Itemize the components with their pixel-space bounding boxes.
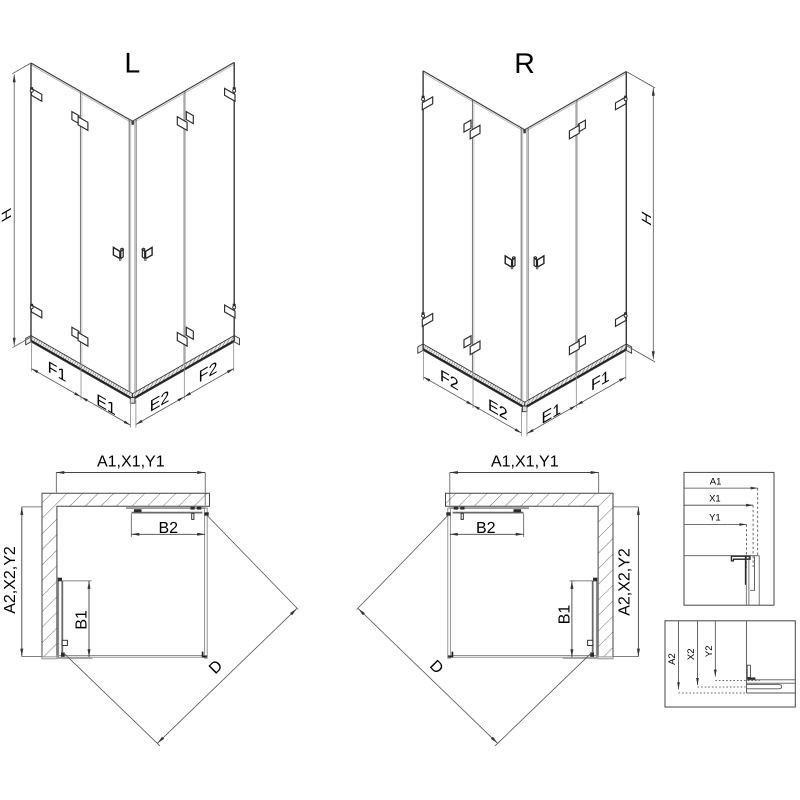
svg-text:A1,X1,Y1: A1,X1,Y1 xyxy=(97,453,165,470)
svg-text:X2: X2 xyxy=(686,648,697,660)
svg-text:A2,X2,Y2: A2,X2,Y2 xyxy=(616,548,633,616)
svg-text:A1,X1,Y1: A1,X1,Y1 xyxy=(491,453,559,470)
svg-text:A2: A2 xyxy=(667,653,678,665)
svg-text:B1: B1 xyxy=(73,610,90,630)
svg-text:Y2: Y2 xyxy=(704,645,715,657)
svg-text:B1: B1 xyxy=(556,605,573,625)
svg-text:A2,X2,Y2: A2,X2,Y2 xyxy=(2,546,19,614)
svg-text:B2: B2 xyxy=(476,520,496,537)
svg-text:L: L xyxy=(124,48,140,80)
svg-text:B2: B2 xyxy=(159,520,179,537)
svg-text:Y1: Y1 xyxy=(709,513,721,524)
svg-text:A1: A1 xyxy=(710,476,722,487)
svg-text:X1: X1 xyxy=(709,493,721,504)
svg-text:R: R xyxy=(514,48,535,80)
